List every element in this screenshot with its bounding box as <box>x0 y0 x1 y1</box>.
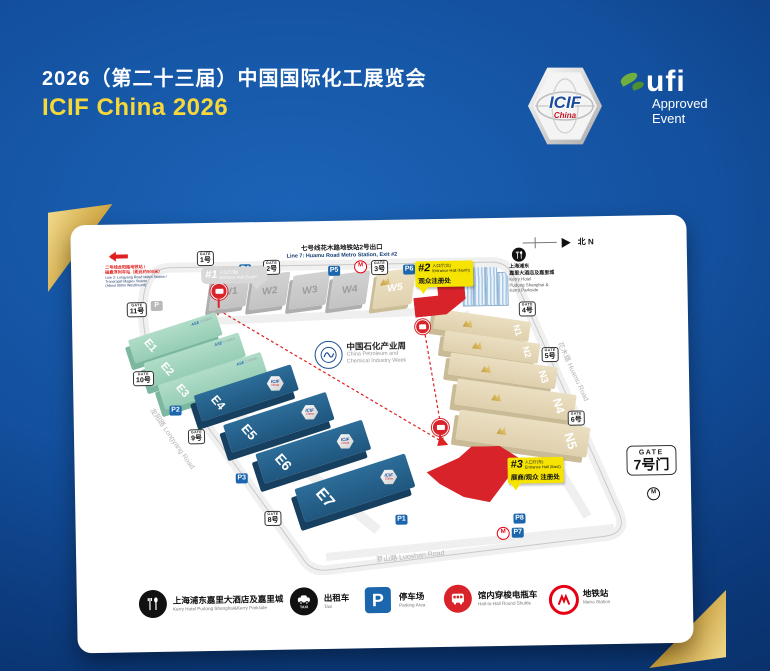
icif-hexagon-logo: ICIF China <box>528 66 602 146</box>
legend-metro-label: 地铁站 Metro Station <box>583 588 611 605</box>
entrance-1-number: #1 <box>205 270 217 281</box>
parking-p2: P2 <box>169 405 181 415</box>
legend-parking-label: 停车场 Parking Area <box>399 591 426 608</box>
parking-p1: P1 <box>395 515 407 525</box>
event-title-en: ICIF China 2026 <box>42 94 228 122</box>
gate-7: GATE7号门 <box>626 445 676 475</box>
gate-5: GATE5号 <box>542 347 559 362</box>
legend-parking-icon: P <box>365 587 391 613</box>
entrance-3-registration: 展商/观众 注册处 <box>511 471 561 482</box>
icif-mini-badge: ICIFChina <box>380 469 397 484</box>
entrance-2-callout: #2 入口厅(北) Entrance Hall (North) 观众注册处 <box>415 260 473 287</box>
parking-p6: P6 <box>403 264 415 274</box>
ufi-leaf-small-icon <box>631 80 645 91</box>
north-arrow-icon <box>562 237 576 247</box>
gate-1: GATE1号 <box>197 251 214 266</box>
gate-10: GATE10号 <box>133 371 154 386</box>
entrance-3-callout: #3 入口厅(东) Entrance Hall (East) 展商/观众 注册处 <box>507 457 563 484</box>
hall-n2-label: N2 <box>520 345 533 359</box>
hall-e3-label: E3 <box>174 382 192 400</box>
icif-logo-sub: China <box>554 111 576 120</box>
gate-6: GATE6号 <box>568 410 585 425</box>
hall-w4: W4 <box>329 270 371 309</box>
ufi-approved-text: Approved <box>652 96 730 111</box>
entrance-3-number: #3 <box>510 460 522 471</box>
hall-e1-label: E1 <box>141 337 159 355</box>
hall-e6-label: E6 <box>271 450 294 473</box>
icif-mini-badge: ICIFChina <box>301 405 318 420</box>
parking-p8: P8 <box>513 514 525 524</box>
entrance-1-en: Entrance Hall (South) <box>219 274 257 280</box>
icif-mini-badge: ICIFChina <box>267 376 284 391</box>
gold-event-logo-icon <box>472 340 483 349</box>
hall-n4-label: N4 <box>550 396 568 415</box>
legend-shuttle-label: 馆内穿梭电瓶车 Hall-to-Hall Round Shuttle <box>478 589 538 607</box>
hall-w3: W3 <box>289 271 331 310</box>
parking-p5: P5 <box>328 266 340 276</box>
hotel-en3: Kerry Parkside <box>509 287 554 294</box>
ufi-approved-event-logo: ufi Approved Event <box>620 68 730 126</box>
hall-e5-label: E5 <box>238 421 260 443</box>
hall-n1-label: N1 <box>511 323 524 337</box>
event-title-cn: 2026（第二十三届）中国国际化工展览会 <box>42 62 427 91</box>
ufi-brand-text: ufi <box>646 68 686 96</box>
gold-event-logo-icon <box>491 392 502 401</box>
icif-logo-text: ICIF <box>549 93 581 113</box>
hall-w2-label: W2 <box>261 285 278 298</box>
hall-n5-label: N5 <box>561 430 580 450</box>
entrance-2-en: Entrance Hall (North) <box>432 267 470 273</box>
cpciw-en2: Chemical Industry Week <box>347 357 407 365</box>
compass-north: 北 N <box>523 236 594 248</box>
floorplan-card: W1 W2 W3 W4 W5 E1 ASE CHINA E2 ASE CHINA… <box>70 215 693 654</box>
hall-e2-label: E2 <box>158 360 176 378</box>
icif-mini-badge: ICIFChina <box>337 434 354 449</box>
gate-4: GATE4号 <box>519 301 536 316</box>
parking-p3: P3 <box>236 473 248 483</box>
gate-11: GATE11号 <box>127 302 148 317</box>
hall-w4-label: W4 <box>341 283 358 296</box>
gold-event-logo-icon <box>463 319 474 328</box>
entrance-1-callout: #1 入口厅(南) Entrance Hall (South) <box>201 266 267 284</box>
entrance-2-number: #2 <box>418 263 430 274</box>
entrance-3-en: Entrance Hall (East) <box>525 463 561 469</box>
metro-line2-note: 二号线龙阳路地铁站 / 磁悬浮列车站（距此约900米） Line 2: Long… <box>105 264 171 289</box>
parking-p7: P7 <box>512 528 524 538</box>
svg-text:TAXI: TAXI <box>300 605 308 609</box>
parking-gray: P <box>151 301 163 311</box>
compass-label: 北 N <box>578 236 594 247</box>
entrance-2-registration: 观众注册处 <box>418 274 470 285</box>
cpciw-label: 中国石化产业周 China Petroleum and Chemical Ind… <box>346 341 406 365</box>
hall-w3-label: W3 <box>301 284 318 297</box>
legend-hotel-label: 上海浦东嘉里大酒店及嘉里城 Kerry Hotel Pudong Shangha… <box>173 594 284 613</box>
west-direction-arrow-icon <box>111 254 128 258</box>
legend-taxi-label: 出租车 Taxi <box>324 593 350 610</box>
ufi-event-text: Event <box>652 111 730 126</box>
hall-w5-label: W5 <box>386 282 403 295</box>
gold-event-logo-icon <box>496 426 507 435</box>
hall-n3-label: N3 <box>535 369 549 384</box>
kerry-hotel-label: 上海浦东 嘉里大酒店及嘉里城 Kerry Hotel Pudong Shangh… <box>509 263 555 294</box>
gate-8: GATE8号 <box>264 511 281 526</box>
hall-e4-label: E4 <box>208 392 228 412</box>
gate-3: GATE3号 <box>371 260 388 275</box>
hall-e7-label: E7 <box>311 485 337 512</box>
gate-9: GATE9号 <box>188 429 205 444</box>
gold-event-logo-icon <box>481 364 492 373</box>
icif-floorplan-poster: { "header": { "title_cn": "2026（第二十三届）中国… <box>0 0 770 671</box>
